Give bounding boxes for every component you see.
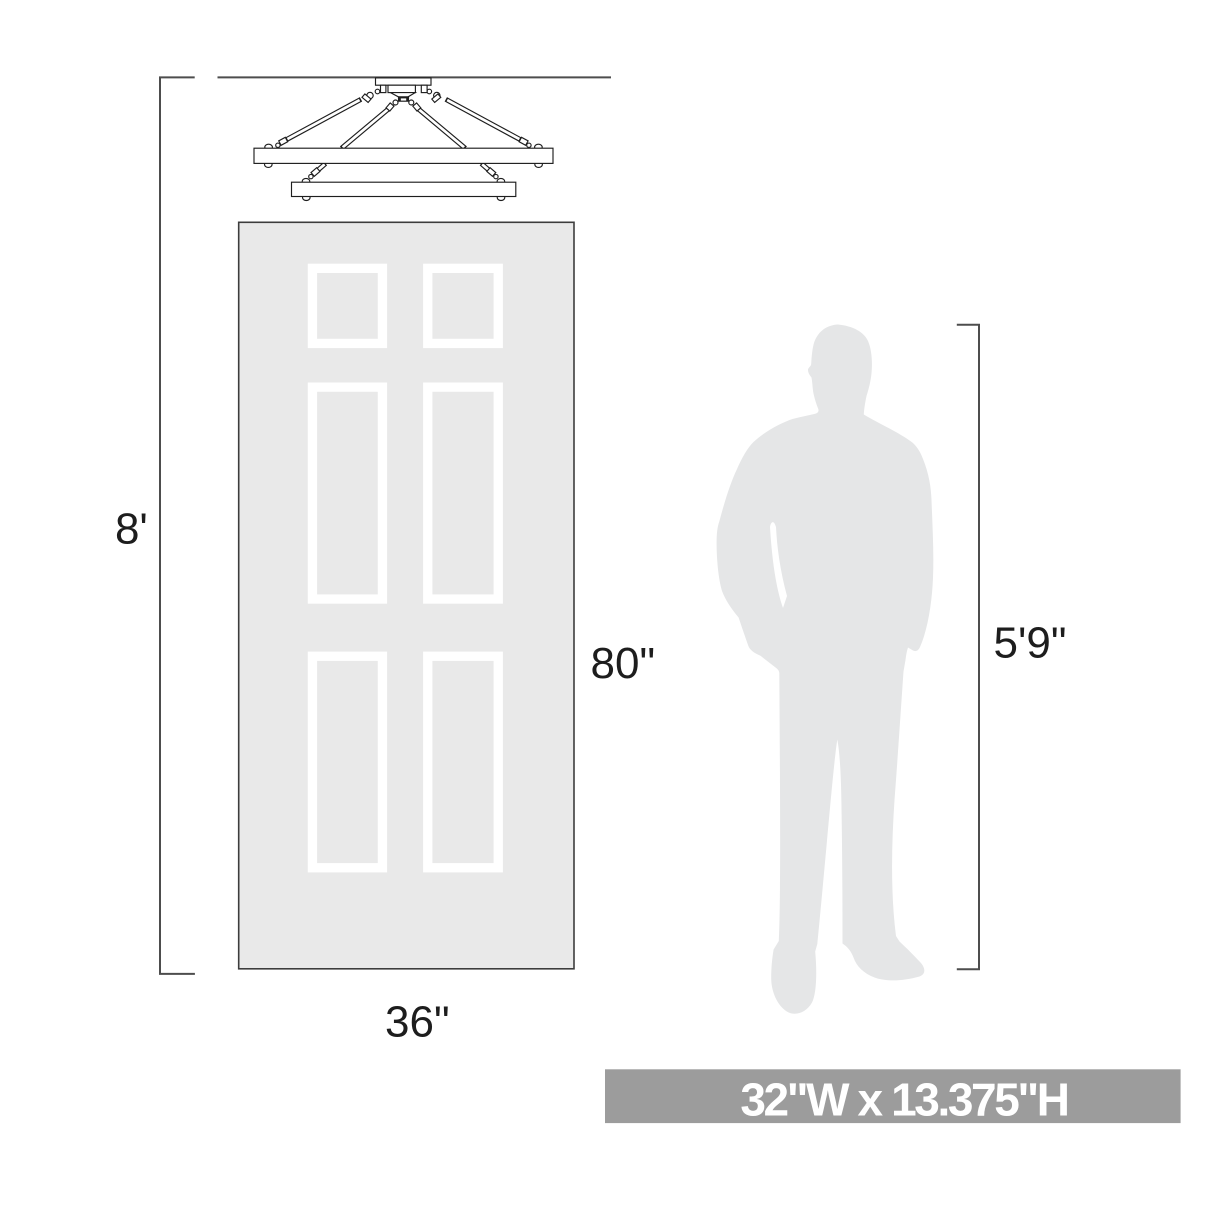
svg-text:80": 80" bbox=[591, 639, 656, 688]
svg-text:36": 36" bbox=[385, 998, 450, 1047]
svg-text:32"W x 13.375"H: 32"W x 13.375"H bbox=[740, 1074, 1067, 1126]
svg-text:5'9": 5'9" bbox=[994, 618, 1067, 667]
svg-text:8': 8' bbox=[115, 505, 148, 554]
